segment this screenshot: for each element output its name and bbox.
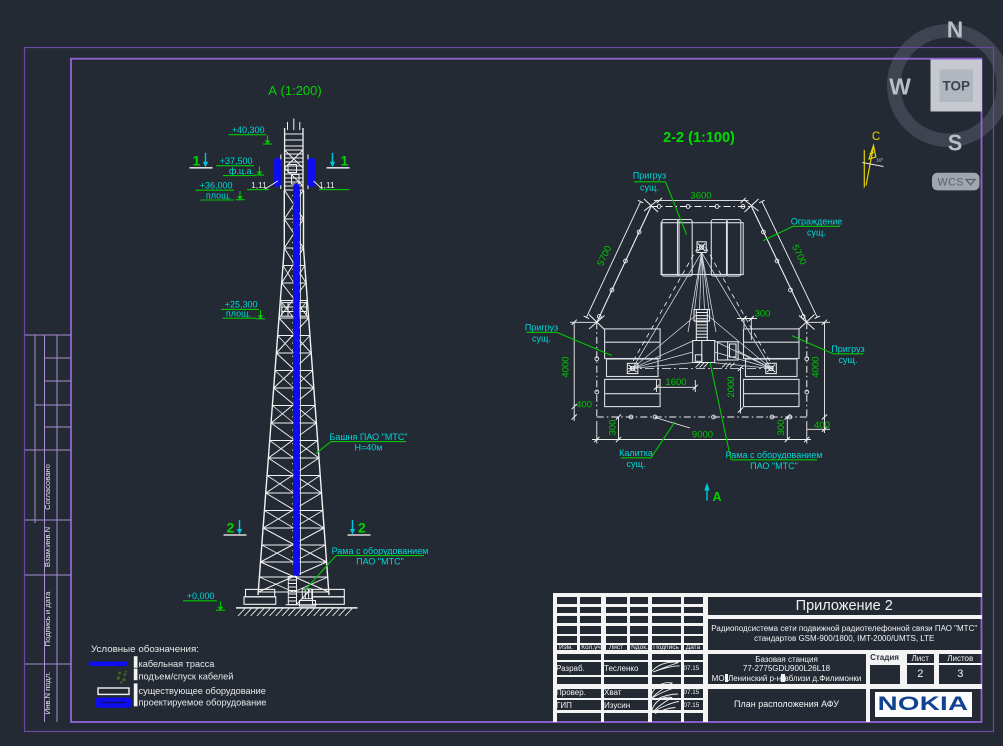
svg-text:Пригруз: Пригруз [633, 171, 666, 181]
svg-text:WCS: WCS [938, 177, 964, 189]
svg-text:TOP: TOP [943, 78, 971, 93]
svg-text:400: 400 [814, 420, 830, 431]
svg-text:подъем/спуск кабелей: подъем/спуск кабелей [139, 671, 234, 681]
svg-text:Ограждение: Ограждение [791, 217, 843, 227]
svg-text:ф.ц.а.: ф.ц.а. [229, 166, 254, 176]
svg-text:2-2 (1:100): 2-2 (1:100) [663, 130, 735, 146]
svg-text:+36,000: +36,000 [200, 180, 233, 190]
svg-text:Башня ПАО "МТС": Башня ПАО "МТС" [329, 432, 407, 442]
svg-text:+0,000: +0,000 [187, 591, 215, 601]
svg-text:Инв.N подл.: Инв.N подл. [43, 672, 52, 715]
svg-text:сущ.: сущ. [807, 228, 826, 238]
svg-text:9000: 9000 [692, 429, 713, 440]
svg-text:существующее оборудование: существующее оборудование [139, 686, 266, 696]
svg-text:S: S [948, 129, 963, 155]
svg-text:+37,500: +37,500 [220, 156, 253, 166]
svg-text:Условные обозначения:: Условные обозначения: [91, 644, 199, 655]
svg-text:10°: 10° [877, 158, 884, 163]
svg-text:4000: 4000 [811, 356, 822, 377]
svg-text:1600: 1600 [665, 377, 686, 388]
svg-text:1,11: 1,11 [319, 180, 335, 190]
svg-text:сущ.: сущ. [640, 183, 659, 193]
svg-text:Согласовано: Согласовано [43, 464, 52, 510]
svg-text:1: 1 [341, 152, 349, 168]
svg-text:ПАО "МТС": ПАО "МТС" [356, 556, 404, 566]
svg-text:площ.: площ. [226, 308, 251, 318]
svg-text:ПАО "МТС": ПАО "МТС" [750, 461, 798, 471]
svg-text:300: 300 [755, 309, 771, 320]
svg-text:1,11: 1,11 [251, 180, 267, 190]
svg-text:Взам.инв.N: Взам.инв.N [43, 527, 52, 567]
svg-text:А (1:200): А (1:200) [268, 83, 321, 98]
svg-text:300: 300 [776, 420, 787, 436]
svg-text:2000: 2000 [726, 376, 737, 397]
svg-text:кабельная трасса: кабельная трасса [139, 659, 216, 669]
svg-text:Калитка: Калитка [619, 448, 653, 458]
svg-text:W: W [889, 74, 911, 100]
svg-text:2: 2 [358, 520, 366, 536]
svg-text:Рама с оборудованием: Рама с оборудованием [332, 546, 429, 556]
svg-text:Рама с оборудованием: Рама с оборудованием [726, 450, 823, 460]
svg-text:1: 1 [193, 152, 201, 168]
svg-text:3600: 3600 [690, 191, 711, 202]
svg-text:сущ.: сущ. [532, 334, 551, 344]
svg-text:Подпись и дата: Подпись и дата [43, 591, 52, 646]
svg-text:300: 300 [608, 420, 619, 436]
svg-text:+40,300: +40,300 [232, 125, 265, 135]
svg-text:Н=40м: Н=40м [355, 442, 383, 452]
svg-text:N: N [947, 17, 964, 43]
svg-text:400: 400 [576, 400, 592, 411]
svg-text:Пригруз: Пригруз [831, 344, 864, 354]
svg-text:С: С [872, 131, 880, 143]
svg-text:4000: 4000 [561, 356, 572, 377]
svg-text:2: 2 [227, 520, 235, 536]
svg-text:площ.: площ. [206, 190, 231, 200]
svg-text:проектируемое оборудование: проектируемое оборудование [139, 698, 267, 708]
svg-text:5700: 5700 [789, 243, 808, 267]
svg-text:сущ.: сущ. [839, 355, 858, 365]
svg-text:А: А [713, 490, 722, 504]
svg-text:Пригруз: Пригруз [525, 323, 558, 333]
svg-text:сущ.: сущ. [627, 459, 646, 469]
